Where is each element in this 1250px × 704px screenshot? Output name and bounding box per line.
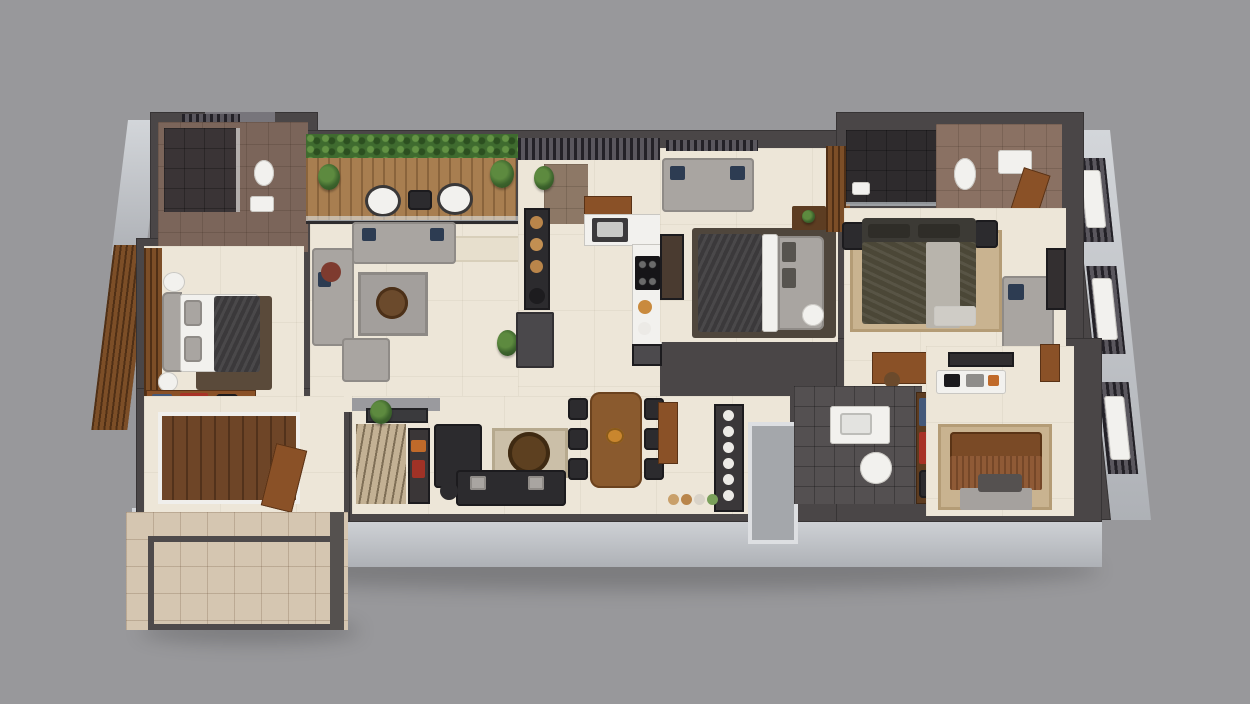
bathroom1-shower [164,128,236,212]
living-coffee-table [376,287,408,319]
kitchen-jar-1 [530,216,543,229]
crockery-plate-4 [723,458,734,469]
living-armchair [342,338,390,382]
kitchen-plate [638,322,651,335]
bathroom1-shower-glass [236,128,240,212]
bedroom2-pillow-1 [782,242,796,262]
master-tv-panel [1046,248,1066,310]
balcony-plant-left [318,164,340,190]
dining-chair-l3 [568,458,588,480]
jar-row-1 [668,494,679,505]
floor-plan-render [0,0,1250,704]
bedroom2-lamp-table [802,304,824,326]
bedroom3-desk-decor [988,375,999,386]
balcony-hedge-planter [306,134,518,158]
bedroom3-door [1040,344,1060,382]
bedroom1-headboard [162,292,182,372]
master-shower-glass [846,202,936,206]
crockery-plate-2 [723,426,734,437]
bathroom1-toilet [254,160,274,186]
bedroom1-side-table [163,272,185,292]
kitchen-hob [635,256,660,290]
lounge-coffee-table [508,432,550,474]
master-pillow-2 [918,224,960,238]
kitchen-plant [534,166,554,190]
bedroom3-desk-pad [966,374,984,387]
bedroom2-console [660,234,684,300]
kitchen-pot [529,288,545,304]
living-plant [497,330,518,356]
lounge-zebra-rug [356,424,406,504]
bedroom2-bed-runner [762,234,778,332]
crockery-plate-1 [723,410,734,421]
balcony-chair-2 [440,186,470,212]
dining-chair-l2 [568,428,588,450]
master-foot-bench [934,306,976,326]
bedroom2-sofa-pillow-1 [670,166,685,180]
balcony-plant-right [490,160,514,188]
bedroom1-duvet [214,296,260,372]
bedroom2-sofa-pillow-2 [730,166,745,180]
bedroom3-laptop [944,374,960,387]
bathroom3-basin [840,413,872,435]
jar-row-2 [681,494,692,505]
living-pillow-1 [362,228,376,241]
bathroom3-floor [794,386,922,504]
master-nightstand-right [974,220,998,248]
master-pillow-1 [868,224,910,238]
kitchen-island-base [632,344,662,366]
balcony-chair-1 [368,188,398,214]
kitchen-pergola [518,138,660,160]
dining-fruit-bowl [606,428,624,444]
bedroom1-lamp-table [158,372,178,392]
bedroom3-foot-bench [978,474,1022,492]
lounge-plant [370,400,392,424]
master-sofa-pillow [1008,284,1024,300]
lounge-console-decor-red [412,460,425,478]
crockery-plate-6 [723,490,734,501]
balcony-side-table [408,190,432,210]
lounge-stool [440,482,458,500]
porch-corner-post [330,512,344,630]
bottom-facade-main [345,515,1102,567]
living-red-stool [321,262,341,282]
master-toilet [954,158,976,190]
kitchen-sink-basin [597,222,623,237]
kitchen-spice-cabinet [584,196,632,216]
bedroom3-headboard [950,432,1042,458]
bathroom1-washbasin [250,196,274,212]
bedroom2-window [666,140,758,151]
jar-row-4 [707,494,718,505]
bedroom1-pillow-top [184,300,202,326]
kitchen-jar-3 [530,260,543,273]
lounge-console-decor-orange [411,440,426,452]
bedroom3-tv-panel [948,352,1014,367]
master-dressing-table [872,352,928,384]
lounge-sofa-pillow-1 [470,476,486,490]
bedroom2-pillow-2 [782,268,796,288]
kitchen-refrigerator [516,312,554,368]
kitchen-jar-2 [530,238,543,251]
living-pillow-2 [430,228,444,241]
porch-border-frame [148,536,338,630]
dining-chair-l1 [568,398,588,420]
crockery-plate-3 [723,442,734,453]
bedroom1-pillow-bottom [184,336,202,362]
entry-niche [748,422,798,544]
lounge-sofa-pillow-2 [528,476,544,490]
bathroom3-toilet [860,452,892,484]
jar-row-3 [694,494,705,505]
kitchen-fruit-plate [638,300,652,314]
bedroom2-nightstand-plant [802,210,815,223]
crockery-plate-5 [723,474,734,485]
master-bath-mat [852,182,870,195]
passage-door [658,402,678,464]
bedroom2-duvet [698,234,762,332]
